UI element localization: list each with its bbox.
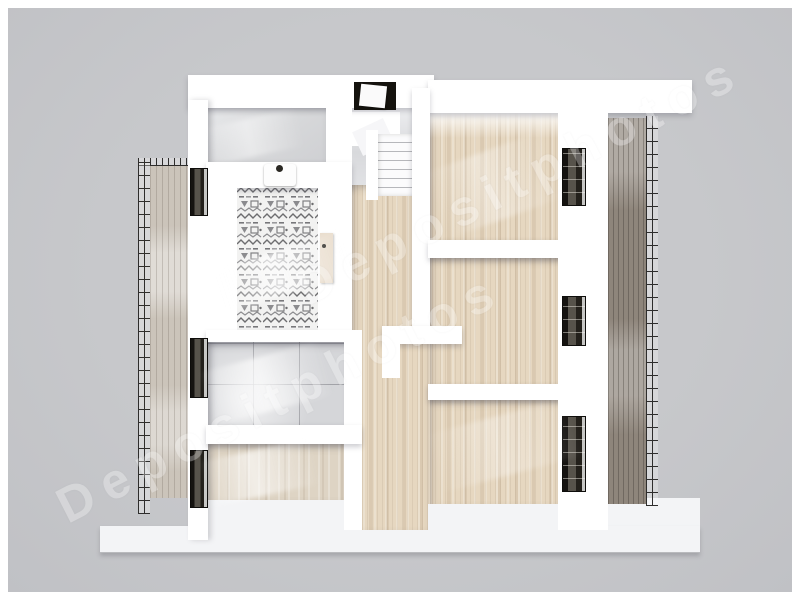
room-mid-right-floor (430, 258, 558, 384)
wall-bathroom-left (206, 188, 237, 330)
wall-hallway-notch-return (382, 326, 400, 378)
stair-stringer (366, 130, 378, 200)
bathroom-door-leaf (320, 233, 333, 283)
room-bottom-left-floor (208, 444, 344, 500)
window-right-1 (562, 148, 586, 206)
window-left-1 (190, 168, 208, 216)
wall-top-left-cap (188, 75, 434, 108)
room-top-right-wallface (430, 112, 558, 138)
balcony-left-deck (150, 166, 188, 498)
window-left-3 (190, 450, 208, 508)
room-bottom-right-floor (430, 400, 558, 504)
wall-utility-bottom-room (206, 425, 362, 444)
door-handle (322, 244, 326, 248)
room-bathroom-floor (237, 187, 318, 330)
wall-bathroom-utility (206, 330, 352, 342)
room-utility-floor (208, 342, 346, 425)
wall-hallway-right (412, 88, 430, 328)
roof-hatch-lid (359, 84, 387, 109)
window-right-2 (562, 296, 586, 346)
room-entry-floor (206, 105, 326, 162)
balcony-right-deck (608, 118, 646, 504)
balcony-left-railing (138, 162, 150, 514)
window-left-2 (190, 338, 208, 398)
sink-tap (276, 165, 283, 172)
bathroom-pattern-tiles (237, 187, 318, 330)
floor-plan-render: Depositphotos Depositphotos (0, 0, 800, 600)
window-right-3 (562, 416, 586, 492)
balcony-right-railing (646, 116, 658, 506)
